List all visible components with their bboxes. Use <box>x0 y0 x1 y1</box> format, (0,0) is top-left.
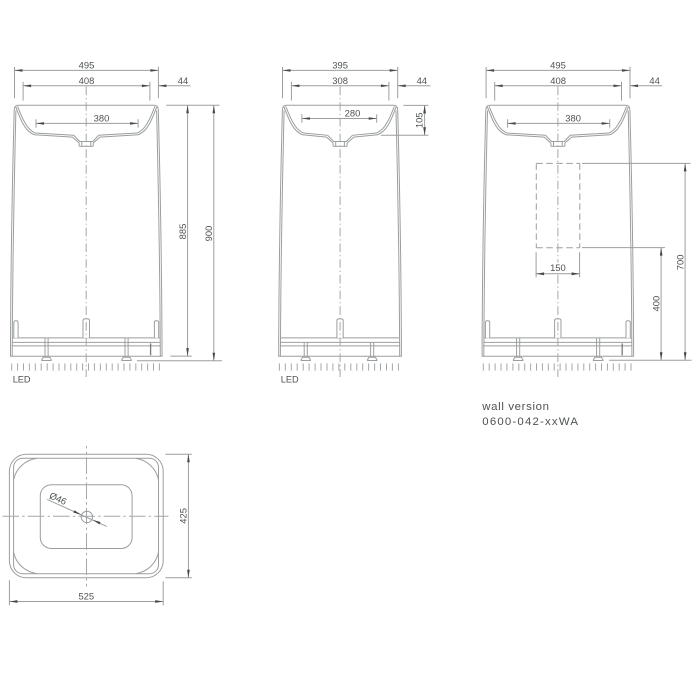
svg-text:700: 700 <box>674 255 685 271</box>
svg-text:400: 400 <box>650 296 661 312</box>
svg-text:44: 44 <box>178 75 188 86</box>
svg-text:885: 885 <box>177 224 188 240</box>
svg-text:525: 525 <box>78 591 94 602</box>
svg-text:495: 495 <box>550 60 566 71</box>
svg-text:44: 44 <box>417 75 427 86</box>
svg-text:0600-042-xxWA: 0600-042-xxWA <box>482 416 579 428</box>
svg-text:395: 395 <box>332 60 348 71</box>
svg-text:408: 408 <box>550 75 566 86</box>
svg-text:380: 380 <box>94 113 110 124</box>
svg-text:495: 495 <box>79 60 95 71</box>
svg-text:150: 150 <box>550 262 566 273</box>
svg-text:LED: LED <box>13 375 31 385</box>
svg-text:900: 900 <box>203 226 214 242</box>
svg-text:280: 280 <box>345 108 361 119</box>
svg-text:44: 44 <box>649 75 659 86</box>
svg-text:105: 105 <box>414 112 425 128</box>
svg-text:380: 380 <box>565 113 581 124</box>
svg-text:425: 425 <box>178 508 189 524</box>
svg-text:308: 308 <box>332 75 348 86</box>
svg-text:408: 408 <box>79 75 95 86</box>
svg-text:wall version: wall version <box>481 401 549 413</box>
svg-text:LED: LED <box>281 375 299 385</box>
